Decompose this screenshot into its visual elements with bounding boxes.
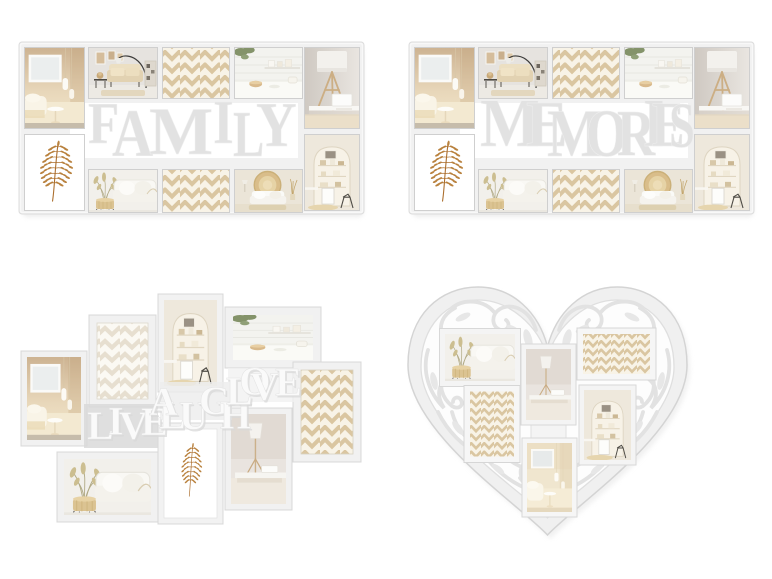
svg-text:M: M [149, 93, 213, 169]
svg-text:A: A [112, 95, 153, 171]
svg-text:A: A [149, 379, 178, 424]
svg-text:I: I [213, 87, 234, 157]
svg-text:S: S [669, 91, 695, 162]
svg-text:E: E [275, 360, 302, 405]
svg-text:Y: Y [256, 90, 297, 161]
